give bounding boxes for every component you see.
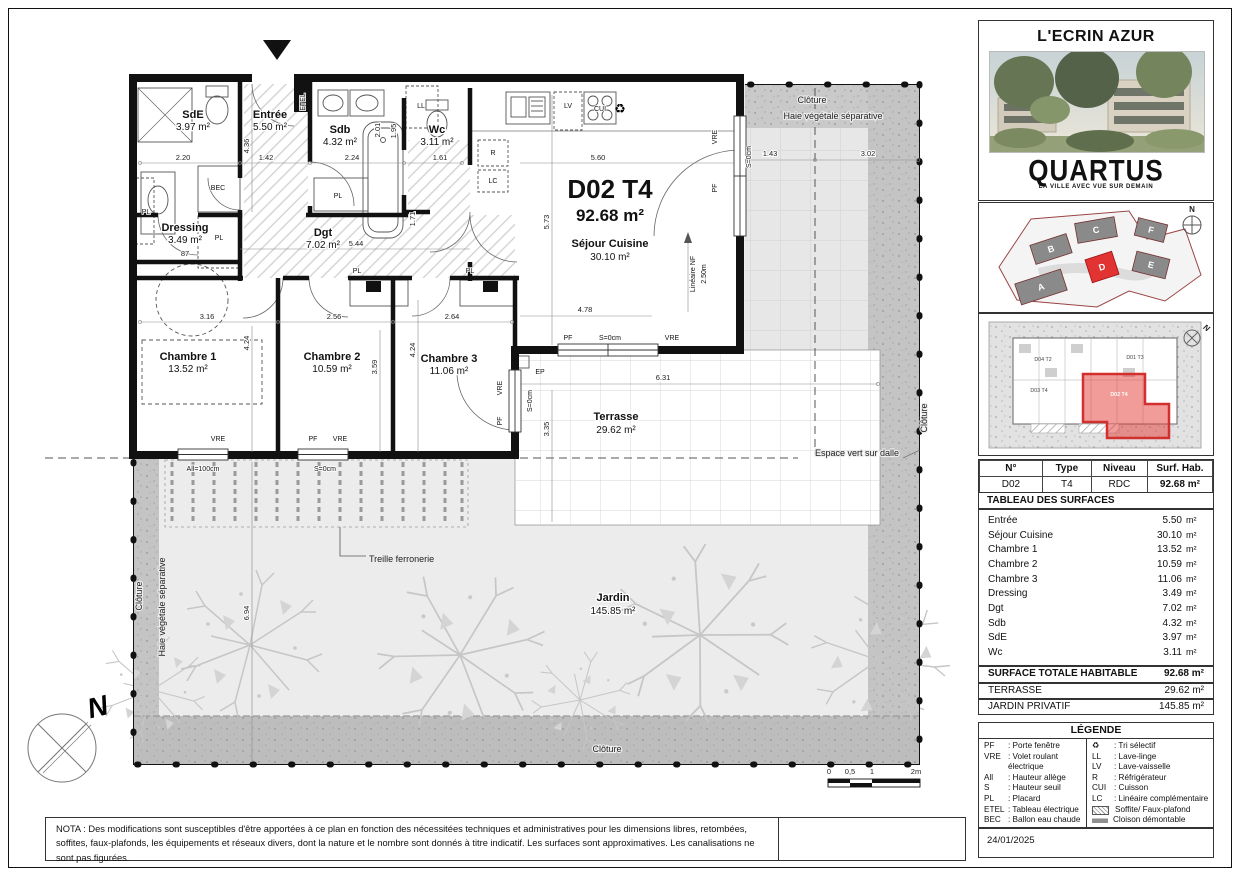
info-value-niveau: RDC	[1091, 477, 1147, 493]
site-north-letter: N	[1189, 205, 1195, 214]
vre-label: VRE	[333, 436, 348, 443]
s0-label: S=0cm	[599, 335, 621, 342]
surface-unit: m²	[1186, 588, 1204, 598]
room-label-entree: Entrée	[253, 109, 287, 121]
surface-total-value: 92.68 m²	[1164, 668, 1204, 679]
room-area-chambre3: 11.06 m²	[430, 366, 469, 377]
legend-entry: Cloison démontable	[1092, 815, 1213, 826]
dim-text: 4.24	[242, 336, 251, 351]
bec-label: BEC	[211, 185, 225, 192]
info-value-numero: D02	[980, 477, 1043, 493]
surface-label: Chambre 1	[988, 544, 1037, 555]
surface-label: Dressing	[988, 588, 1027, 599]
locator-north-letter: N	[1201, 323, 1211, 334]
info-header-surface: Surf. Hab.	[1147, 461, 1212, 477]
surface-label: Chambre 2	[988, 559, 1037, 570]
surface-label: Dgt	[988, 603, 1004, 614]
dim-text: 1.42	[259, 153, 274, 162]
brand-logo: QUARTUS	[979, 153, 1213, 189]
surface-unit: m²	[1186, 603, 1204, 613]
surface-label: Wc	[988, 647, 1002, 658]
dim-text: 1.43	[763, 149, 778, 158]
trellis-label: Treille ferronerie	[369, 554, 434, 564]
surface-value: 10.59	[1142, 559, 1182, 570]
surface-value: 3.11	[1142, 647, 1182, 658]
dim-text: 3.35	[542, 422, 551, 437]
legend-entry: ETEL: Tableau électrique	[984, 805, 1086, 816]
surface-unit: m²	[1186, 544, 1204, 554]
surface-row: Chambre 210.59m²	[979, 557, 1213, 572]
surface-unit: m²	[1186, 618, 1204, 628]
cloture-label: Clôture	[592, 744, 621, 754]
dim-text: 2.24	[345, 153, 360, 162]
surface-total-box: SURFACE TOTALE HABITABLE92.68 m²	[978, 666, 1214, 683]
legend-entry: VRE: Volet roulant électrique	[984, 752, 1086, 773]
ll-label: LL	[417, 103, 425, 110]
legend-title: LÉGENDE	[979, 723, 1213, 739]
room-area-terrasse: 29.62 m²	[596, 425, 636, 436]
haie-label: Haie végétale séparative	[783, 111, 882, 121]
pf-label: PF	[564, 335, 573, 342]
dim-text: 4.24	[408, 343, 417, 358]
terrasse-value: 29.62 m²	[1165, 685, 1204, 696]
surface-unit: m²	[1186, 647, 1204, 657]
vre-label: VRE	[497, 380, 504, 395]
dim-text: 2.56	[327, 312, 342, 321]
legend-entry: All: Hauteur allège	[984, 773, 1086, 784]
north-compass-icon	[28, 714, 96, 782]
north-letter: N	[84, 689, 112, 724]
room-label-jardin: Jardin	[596, 592, 629, 604]
pf-label: PF	[497, 417, 504, 426]
pl-label: PL	[353, 268, 362, 275]
site-plan-map: A B C D E F N	[979, 203, 1213, 312]
pl-label: PL	[334, 193, 343, 200]
dim-text: 5.60	[591, 153, 606, 162]
surface-row: Chambre 113.52m²	[979, 542, 1213, 557]
terrasse-label: TERRASSE	[988, 685, 1042, 696]
dim-text: 1.95	[389, 124, 398, 139]
nota-box: NOTA : Des modifications sont susceptibl…	[45, 817, 779, 861]
dim-text: 4.36	[242, 139, 251, 154]
lineaire-nf-value: 2.50m	[701, 264, 708, 284]
room-label-chambre2: Chambre 2	[304, 351, 361, 363]
surface-value: 5.50	[1142, 515, 1182, 526]
project-photo	[989, 51, 1205, 153]
surface-total-label: SURFACE TOTALE HABITABLE	[988, 668, 1137, 679]
s0-label: S=0cm	[527, 390, 534, 412]
jardin-label: JARDIN PRIVATIF	[988, 701, 1070, 712]
site-compass-icon	[1183, 216, 1201, 234]
brand-tagline: LA VILLE AVEC VUE SUR DEMAIN	[979, 184, 1213, 190]
plan-date: 24/01/2025	[979, 829, 1213, 852]
room-area-dgt: 7.02 m²	[306, 240, 341, 251]
surface-value: 11.06	[1142, 574, 1182, 585]
tri-selectif-icon: ♻	[614, 101, 626, 116]
dim-text: 5.44	[349, 239, 364, 248]
terrasse-area	[515, 350, 880, 525]
nota-text: NOTA : Des modifications sont susceptibl…	[46, 818, 778, 869]
legend-entry: PL: Placard	[984, 794, 1086, 805]
pl-label: PL	[466, 268, 475, 275]
entrance-arrow-icon	[263, 40, 291, 60]
dim-text: 1.71	[408, 212, 417, 227]
surface-value: 4.32	[1142, 618, 1182, 629]
info-header-niveau: Niveau	[1091, 461, 1147, 477]
unit-locator-map: D04 T2 D01 T3 D03 T4 D02 T4 N	[979, 314, 1213, 455]
floor-plan-drawing: Treille ferronerie	[0, 0, 975, 812]
surface-label: Sdb	[988, 618, 1006, 629]
room-area-chambre2: 10.59 m²	[312, 364, 352, 375]
room-area-jardin: 145.85 m²	[590, 606, 636, 617]
legend-entry: LV: Lave-vaisselle	[1092, 762, 1213, 773]
cloture-label: Clôture	[919, 403, 929, 432]
surface-value: 7.02	[1142, 603, 1182, 614]
surface-row: Wc3.11m²	[979, 645, 1213, 660]
surface-row: Entrée5.50m²	[979, 513, 1213, 528]
surfaces-title-box: TABLEAU DES SURFACES	[978, 492, 1214, 509]
unit-info-table: N° Type Niveau Surf. Hab. D02 T4 RDC 92.…	[979, 460, 1213, 493]
unit-info-table-box: N° Type Niveau Surf. Hab. D02 T4 RDC 92.…	[978, 459, 1214, 494]
jardin-value: 145.85 m²	[1159, 701, 1204, 712]
room-area-sejour: 30.10 m²	[590, 252, 630, 263]
scale-tick: 0	[827, 767, 831, 776]
soffite-swatch-icon	[1092, 806, 1109, 815]
tri-selectif-icon: ♻	[1092, 741, 1114, 752]
surface-value: 13.52	[1142, 544, 1182, 555]
surface-value: 30.10	[1142, 530, 1182, 541]
pf-label: PF	[712, 184, 719, 193]
room-label-dgt: Dgt	[314, 227, 333, 239]
legend-entry: R: Réfrigérateur	[1092, 773, 1213, 784]
locator-unit-highlight-label: D02 T4	[1110, 392, 1127, 398]
dim-text: 2.01	[373, 123, 382, 138]
surface-label: Séjour Cuisine	[988, 530, 1053, 541]
legend-entry: ♻: Tri sélectif	[1092, 741, 1213, 752]
legend-entry: BEC: Ballon eau chaude	[984, 815, 1086, 826]
info-header-type: Type	[1042, 461, 1091, 477]
surface-row: Dressing3.49m²	[979, 586, 1213, 601]
lv-label: LV	[564, 103, 572, 110]
dim-text: 3.59	[370, 360, 379, 375]
room-label-chambre1: Chambre 1	[160, 351, 217, 363]
scale-tick: 2m	[911, 767, 921, 776]
legend-entry: PF: Porte fenêtre	[984, 741, 1086, 752]
legend-entry: Soffite/ Faux-plafond	[1092, 805, 1213, 816]
info-value-surface: 92.68 m²	[1147, 477, 1212, 493]
room-label-sde: SdE	[182, 109, 203, 121]
s0-label: S=0cm	[314, 466, 336, 473]
legend-left-column: PF: Porte fenêtre VRE: Volet roulant éle…	[979, 739, 1087, 827]
dim-text: 3.16	[200, 312, 215, 321]
room-label-sejour: Séjour Cuisine	[571, 238, 648, 250]
lc-label: LC	[489, 178, 498, 185]
room-area-chambre1: 13.52 m²	[168, 364, 208, 375]
locator-unit-label: D03 T4	[1030, 388, 1047, 394]
pl-label: PL	[215, 235, 224, 242]
surface-unit: m²	[1186, 515, 1204, 525]
surfaces-table-title: TABLEAU DES SURFACES	[979, 493, 1213, 508]
date-box: 24/01/2025	[978, 828, 1214, 858]
espace-vert-label: Espace vert sur dalle	[815, 448, 899, 458]
surface-label: SdE	[988, 632, 1007, 643]
pf-label: PF	[309, 436, 318, 443]
info-value-type: T4	[1042, 477, 1091, 493]
plan-sheet: Treille ferronerie	[0, 0, 1240, 876]
s0-label: S=0cm	[746, 146, 753, 168]
surface-unit: m²	[1186, 574, 1204, 584]
surface-unit: m²	[1186, 632, 1204, 642]
vre-label: VRE	[665, 335, 680, 342]
project-header-box: L'ECRIN AZUR QUARTUS LA VILLE AVEC VUE S…	[978, 20, 1214, 201]
legend-right-column: ♻: Tri sélectif LL: Lave-linge LV: Lave-…	[1087, 739, 1213, 827]
surfaces-rows-box: Entrée5.50m² Séjour Cuisine30.10m² Chamb…	[978, 509, 1214, 666]
room-label-terrasse: Terrasse	[593, 411, 638, 423]
surface-row: Dgt7.02m²	[979, 601, 1213, 616]
cloture-label: Clôture	[134, 581, 144, 610]
room-label-chambre3: Chambre 3	[421, 353, 478, 365]
dim-text: 87	[181, 249, 189, 258]
surface-row: Chambre 311.06m²	[979, 572, 1213, 587]
room-label-wc: Wc	[429, 124, 446, 136]
terrasse-row-box: TERRASSE29.62 m²	[978, 683, 1214, 699]
dim-text: 2.64	[445, 312, 460, 321]
room-area-dressing: 3.49 m²	[168, 235, 203, 246]
unit-locator-box: D04 T2 D01 T3 D03 T4 D02 T4 N	[978, 313, 1214, 456]
haie-label: Haie végétale séparative	[157, 557, 167, 656]
dim-text: 6.94	[242, 606, 251, 621]
surface-row: Sdb4.32m²	[979, 616, 1213, 631]
legend-entry: CUI: Cuisson	[1092, 783, 1213, 794]
legend-entry: S: Hauteur seuil	[984, 783, 1086, 794]
refrigerator-label: R	[490, 150, 495, 157]
legend-entry: LC: Linéaire complémentaire	[1092, 794, 1213, 805]
project-title: L'ECRIN AZUR	[979, 21, 1213, 46]
unit-area: 92.68 m²	[576, 206, 644, 225]
dim-text: 6.31	[656, 373, 671, 382]
ep-label: EP	[535, 369, 545, 376]
room-label-sdb: Sdb	[330, 124, 351, 136]
locator-unit-label: D04 T2	[1034, 357, 1051, 363]
dim-text: 2.20	[176, 153, 191, 162]
surface-value: 3.97	[1142, 632, 1182, 643]
dim-text: 3.02	[861, 149, 876, 158]
surface-row: Séjour Cuisine30.10m²	[979, 528, 1213, 543]
site-plan-box: A B C D E F N	[978, 202, 1214, 313]
room-area-wc: 3.11 m²	[420, 137, 454, 148]
surface-value: 3.49	[1142, 588, 1182, 599]
jardin-row-box: JARDIN PRIVATIF145.85 m²	[978, 699, 1214, 715]
room-label-dressing: Dressing	[161, 222, 208, 234]
dim-text: 1.61	[433, 153, 448, 162]
room-area-sdb: 4.32 m²	[323, 137, 358, 148]
room-area-sde: 3.97 m²	[176, 122, 211, 133]
surface-label: Entrée	[988, 515, 1017, 526]
cloture-label: Clôture	[797, 95, 826, 105]
vre-label: VRE	[211, 436, 226, 443]
scale-bar: 0 0,5 1 2m	[827, 767, 921, 787]
surface-label: Chambre 3	[988, 574, 1037, 585]
lineaire-nf-label: Linéaire NF	[690, 256, 697, 292]
nota-side-box	[778, 817, 966, 861]
unit-title: D02 T4	[567, 174, 653, 204]
scale-tick: 0,5	[845, 767, 855, 776]
legend-entry: LL: Lave-linge	[1092, 752, 1213, 763]
surface-row: SdE3.97m²	[979, 631, 1213, 646]
cloison-swatch-icon	[1092, 818, 1108, 823]
surface-unit: m²	[1186, 530, 1204, 540]
cui-label: CUI	[594, 106, 606, 113]
all100-label: All=100cm	[187, 466, 220, 473]
dim-text: 5.73	[542, 215, 551, 230]
dim-text: 4.78	[578, 305, 593, 314]
locator-unit-label: D01 T3	[1126, 355, 1143, 361]
vre-label: VRE	[712, 129, 719, 144]
etel-label: ETEL	[300, 93, 307, 111]
scale-tick: 1	[870, 767, 874, 776]
surface-unit: m²	[1186, 559, 1204, 569]
room-area-entree: 5.50 m²	[253, 122, 288, 133]
info-header-numero: N°	[980, 461, 1043, 477]
pl-label: PL	[142, 209, 151, 216]
legend-box: LÉGENDE PF: Porte fenêtre VRE: Volet rou…	[978, 722, 1214, 828]
